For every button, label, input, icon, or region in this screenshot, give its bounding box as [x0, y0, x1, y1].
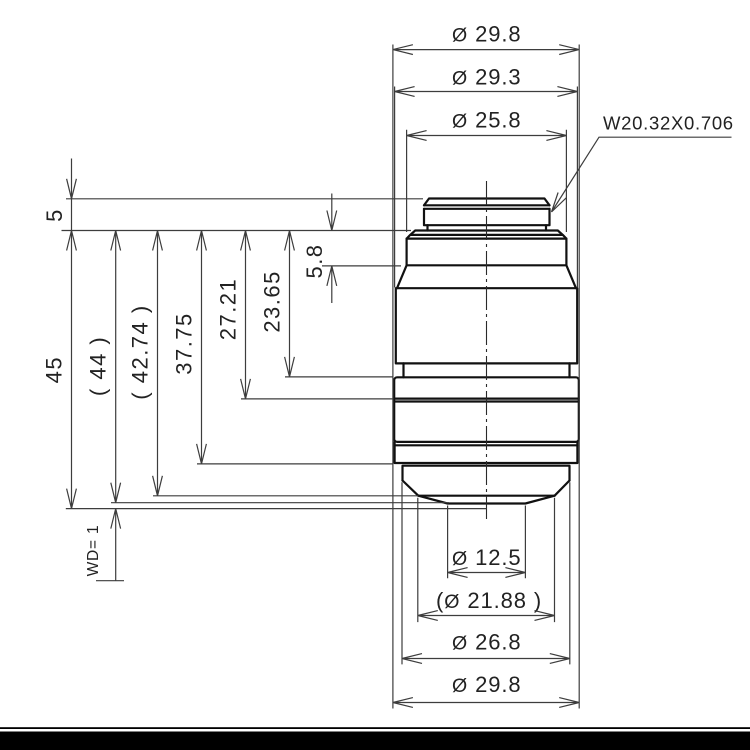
svg-text:23.65: 23.65	[260, 270, 285, 333]
svg-text:5: 5	[42, 208, 67, 222]
svg-text:WD= 1: WD= 1	[85, 525, 102, 577]
svg-text:( 42.74 ): ( 42.74 )	[128, 304, 153, 399]
svg-text:Ø 29.8: Ø 29.8	[452, 22, 522, 47]
svg-text:Ø 25.8: Ø 25.8	[452, 108, 522, 133]
svg-text:(Ø 21.88 ): (Ø 21.88 )	[436, 588, 542, 613]
svg-text:27.21: 27.21	[216, 278, 241, 341]
svg-text:Ø 26.8: Ø 26.8	[452, 629, 522, 654]
svg-text:Ø 29.3: Ø 29.3	[452, 65, 522, 90]
svg-text:W20.32X0.706: W20.32X0.706	[603, 113, 734, 134]
svg-text:Ø 12.5: Ø 12.5	[452, 545, 522, 570]
svg-text:45: 45	[42, 356, 67, 383]
svg-text:5.8: 5.8	[302, 243, 327, 278]
svg-text:Ø 29.8: Ø 29.8	[452, 672, 522, 697]
svg-text:( 44 ): ( 44 )	[86, 336, 111, 396]
svg-text:37.75: 37.75	[172, 312, 197, 375]
